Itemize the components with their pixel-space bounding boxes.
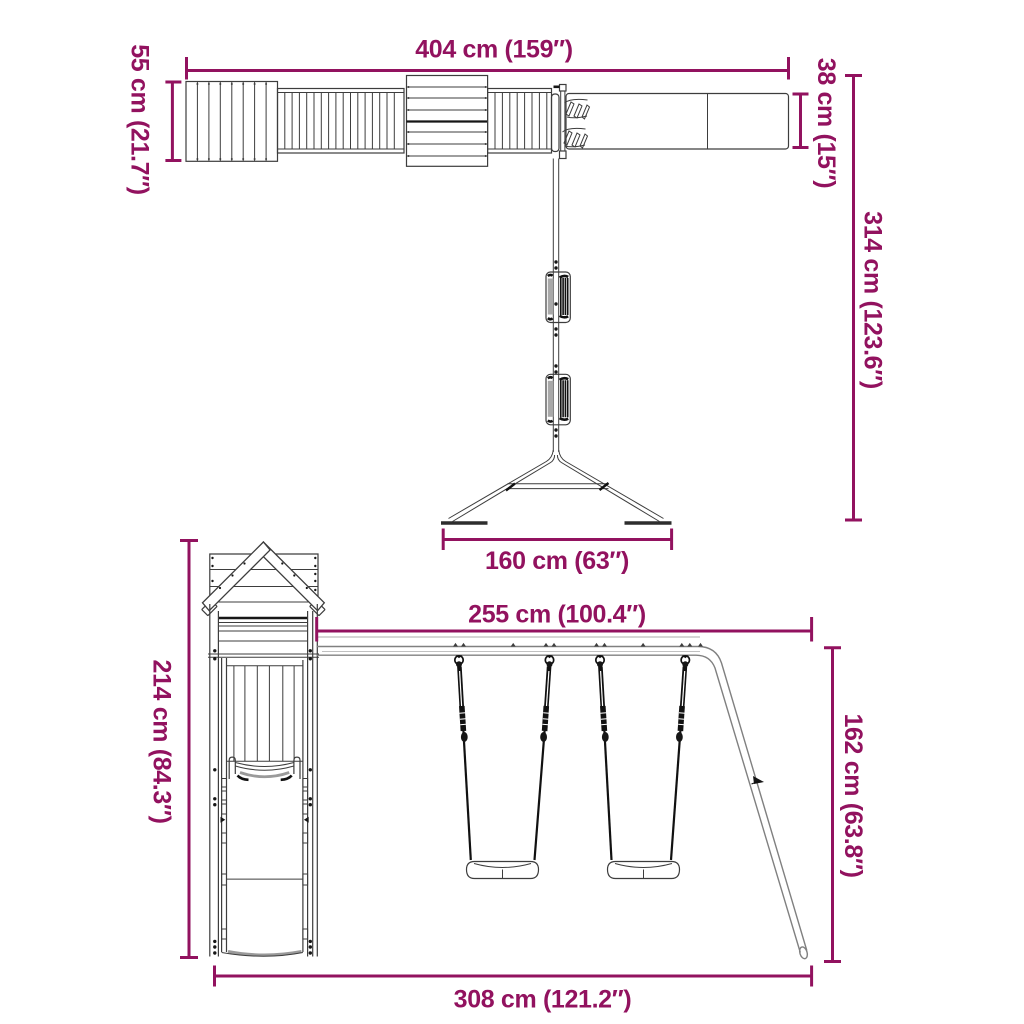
svg-text:160 cm (63″): 160 cm (63″) xyxy=(485,547,629,575)
svg-text:308 cm (121.2″): 308 cm (121.2″) xyxy=(454,986,632,1014)
svg-text:214 cm (84.3″): 214 cm (84.3″) xyxy=(148,659,176,823)
svg-text:38 cm (15″): 38 cm (15″) xyxy=(812,58,840,188)
svg-text:55 cm (21.7″): 55 cm (21.7″) xyxy=(126,44,154,195)
svg-text:255 cm (100.4″): 255 cm (100.4″) xyxy=(468,601,646,629)
svg-text:404 cm (159″): 404 cm (159″) xyxy=(415,36,573,64)
svg-text:162 cm (63.8″): 162 cm (63.8″) xyxy=(839,713,867,877)
svg-text:314 cm (123.6″): 314 cm (123.6″) xyxy=(859,211,887,389)
